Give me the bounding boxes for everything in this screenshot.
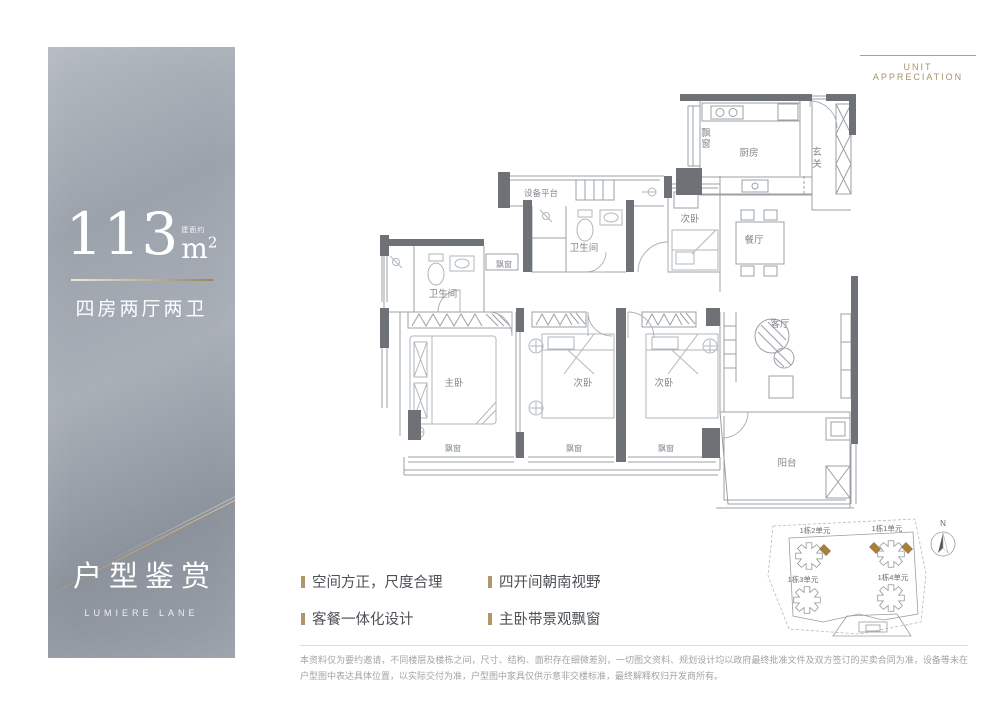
compass-icon: N [931,519,955,556]
site-unit-label: 1栋2单元 [800,525,831,535]
bullet-icon [301,613,305,625]
label-kitchen-bay-2: 窗 [701,138,711,150]
area-prefix: 建面约 [181,225,205,235]
feature-text: 客餐一体化设计 [312,608,414,629]
label-entry-1: 玄 [812,146,822,158]
label-kitchen-bay-1: 飘 [701,128,711,139]
feature-item: 主卧带景观飘窗 [488,608,601,629]
brochure-page: 113 建面约 m2 四房两厅两卫 户型鉴赏 LUMIERE LANE UNIT… [0,0,1000,723]
panel-subtitle: LUMIERE LANE [48,608,235,618]
site-unit-label: 1栋3单元 [788,574,819,584]
floor-plan: 飘 窗 玄 关 厨房 设备平台 卫生间 次卧 餐厅 飘窗 卫生间 主卧 次卧 次… [380,80,880,512]
label-equipment-platform: 设备平台 [524,188,558,198]
label-master-bedroom: 主卧 [444,377,464,389]
feature-list: 空间方正，尺度合理 四开间朝南视野 客餐一体化设计 主卧带景观飘窗 [301,571,601,629]
feature-text: 四开间朝南视野 [499,571,601,592]
feature-item: 空间方正，尺度合理 [301,571,488,592]
feature-text: 空间方正，尺度合理 [312,571,443,592]
feature-item: 四开间朝南视野 [488,571,601,592]
unit-appreciation-tagline: UNIT APPRECIATION [860,55,976,82]
label-dining: 餐厅 [744,234,764,246]
label-balcony: 阳台 [777,457,796,469]
feature-item: 客餐一体化设计 [301,608,488,629]
plan-walls [380,94,858,462]
layout-label: 四房两厅两卫 [48,294,235,321]
bullet-icon [488,613,492,625]
label-kitchen: 厨房 [739,147,758,159]
panel-title-block: 户型鉴赏 LUMIERE LANE [48,553,235,618]
label-bedroom-2: 次卧 [573,377,593,389]
label-bedroom-3: 次卧 [654,377,674,389]
label-bedroom-top: 次卧 [680,213,700,225]
label-bay-2: 飘窗 [566,443,582,453]
label-bay-1: 飘窗 [445,443,461,453]
area-block: 113 建面约 m2 四房两厅两卫 [48,205,235,321]
panel-title: 户型鉴赏 [48,553,235,595]
gold-divider [71,279,213,281]
label-living: 客厅 [770,318,790,330]
area-unit: m2 [181,235,217,263]
feature-text: 主卧带景观飘窗 [499,608,601,629]
label-bath-left: 卫生间 [429,288,458,300]
bullet-icon [488,576,492,588]
bullet-icon [301,576,305,588]
site-unit-label: 1栋1单元 [872,523,903,533]
site-plan: 1栋2单元 1栋1单元 1栋3单元 1栋4单元 N [763,512,965,648]
site-unit-label: 1栋4单元 [878,572,909,582]
area-value: 113 [66,205,180,263]
label-bay-3: 飘窗 [658,443,674,453]
compass-label: N [940,519,946,528]
label-entry-2: 关 [812,158,822,170]
label-bay-mid: 飘窗 [496,259,512,269]
disclaimer-text: 本资料仅为要约邀请，不同楼层及楼栋之间，尺寸、结构、面积存在细微差别，一切图文资… [300,645,968,685]
left-panel: 113 建面约 m2 四房两厅两卫 户型鉴赏 LUMIERE LANE [48,47,235,658]
label-bath-mid: 卫生间 [570,242,599,254]
